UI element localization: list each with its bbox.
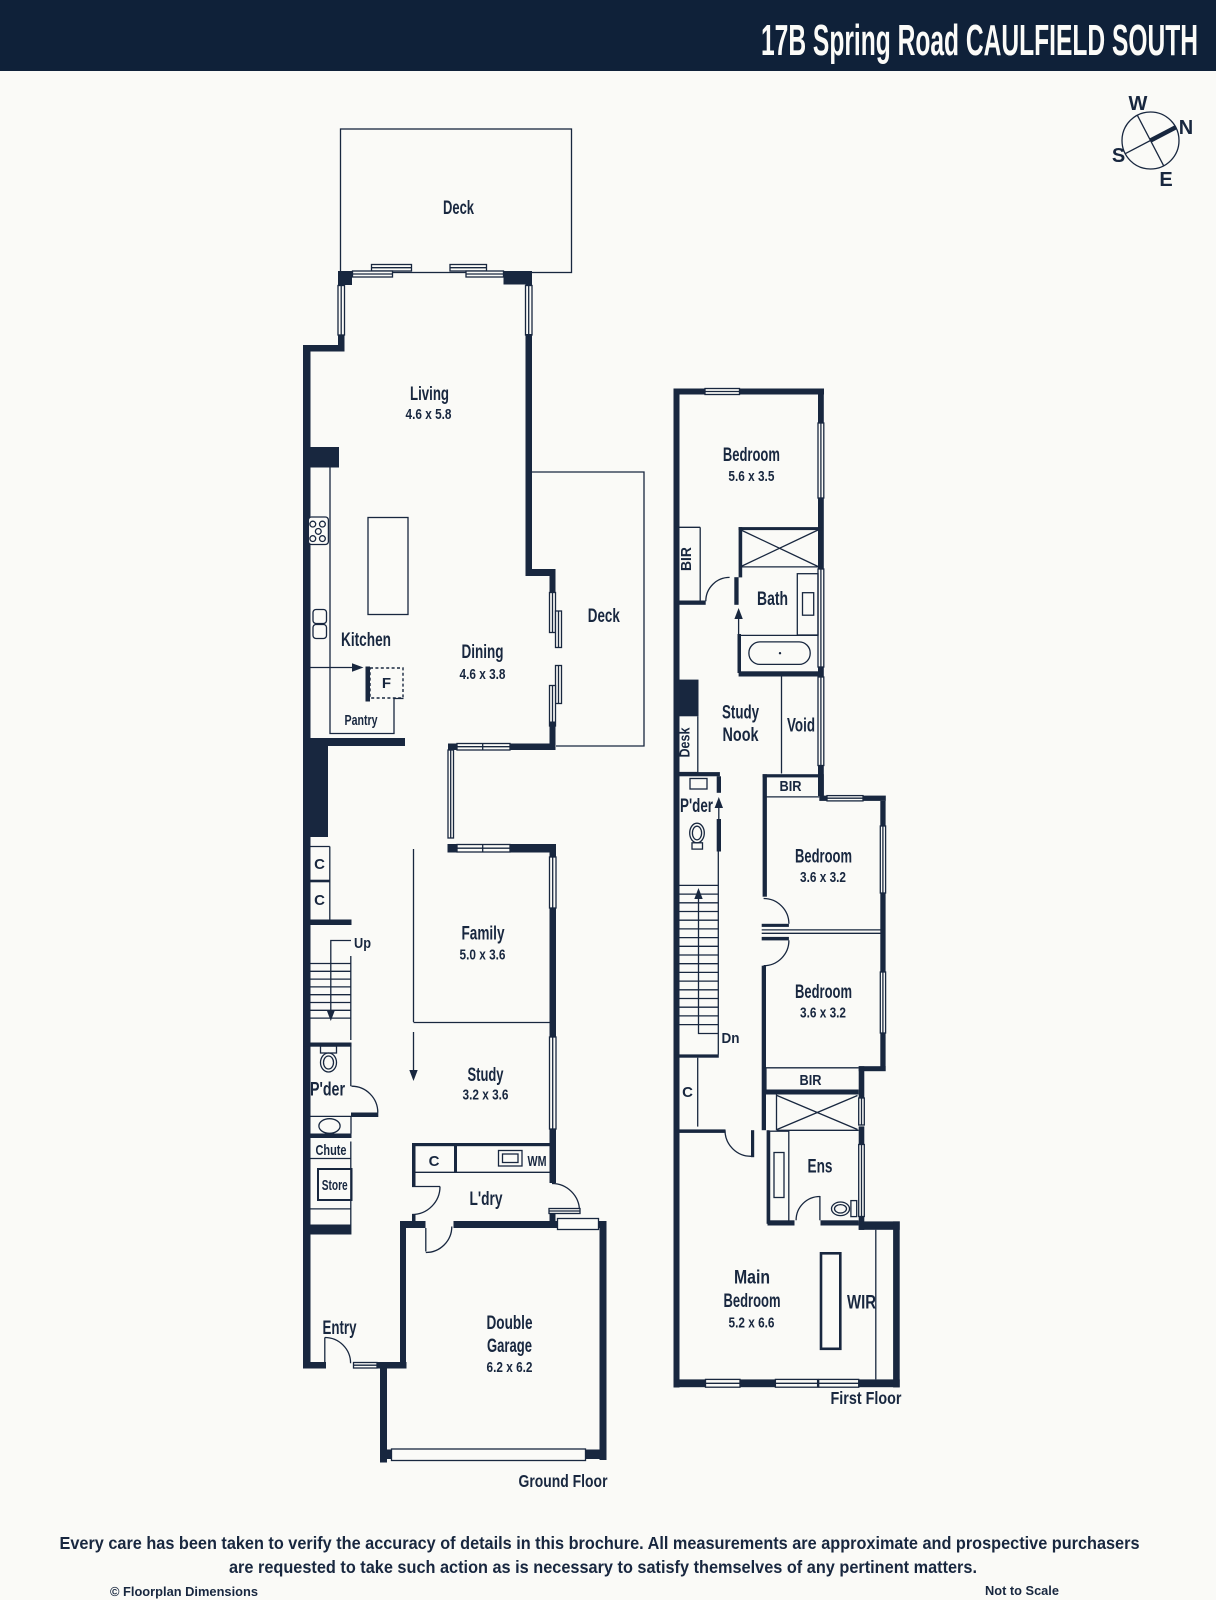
svg-text:5.2 x 6.6: 5.2 x 6.6 <box>729 1315 775 1332</box>
svg-text:Double: Double <box>487 1313 533 1334</box>
svg-text:Main: Main <box>734 1268 770 1289</box>
svg-text:WIR: WIR <box>847 1293 876 1314</box>
svg-text:Bedroom: Bedroom <box>795 847 852 868</box>
svg-text:Void: Void <box>787 716 815 737</box>
svg-text:Not to Scale: Not to Scale <box>985 1584 1059 1598</box>
svg-text:Bath: Bath <box>757 589 788 610</box>
svg-text:3.2 x 3.6: 3.2 x 3.6 <box>463 1087 509 1104</box>
svg-text:Chute: Chute <box>316 1142 347 1159</box>
svg-text:are requested to take such act: are requested to take such action as is … <box>229 1557 977 1577</box>
svg-text:WM: WM <box>528 1153 547 1170</box>
svg-text:P'der: P'der <box>680 796 713 817</box>
svg-text:Nook: Nook <box>723 725 759 746</box>
svg-text:W: W <box>1129 93 1148 115</box>
svg-text:BIR: BIR <box>800 1072 822 1089</box>
svg-text:6.2 x 6.2: 6.2 x 6.2 <box>487 1359 533 1376</box>
svg-text:Dining: Dining <box>462 642 504 663</box>
svg-text:C: C <box>314 892 325 909</box>
svg-text:L'dry: L'dry <box>470 1189 503 1210</box>
svg-text:S: S <box>1112 145 1125 167</box>
svg-text:Entry: Entry <box>323 1318 357 1339</box>
svg-text:Pantry: Pantry <box>345 712 378 729</box>
svg-text:3.6 x 3.2: 3.6 x 3.2 <box>800 869 846 886</box>
svg-text:Bedroom: Bedroom <box>723 445 780 466</box>
svg-text:Study: Study <box>468 1065 504 1086</box>
svg-text:5.0 x 3.6: 5.0 x 3.6 <box>460 947 506 964</box>
svg-text:Garage: Garage <box>487 1336 532 1357</box>
svg-text:Study: Study <box>722 703 759 724</box>
svg-text:5.6 x 3.5: 5.6 x 3.5 <box>728 468 774 485</box>
svg-text:17B Spring Road CAULFIELD SOUT: 17B Spring Road CAULFIELD SOUTH <box>761 16 1198 65</box>
svg-text:Ground Floor: Ground Floor <box>519 1471 608 1491</box>
svg-text:Dn: Dn <box>722 1030 740 1047</box>
svg-text:Deck: Deck <box>443 198 474 219</box>
svg-text:Kitchen: Kitchen <box>341 630 391 651</box>
svg-text:© Floorplan Dimensions: © Floorplan Dimensions <box>110 1585 258 1599</box>
svg-text:4.6 x 3.8: 4.6 x 3.8 <box>460 666 506 683</box>
svg-text:3.6 x 3.2: 3.6 x 3.2 <box>800 1005 846 1022</box>
svg-text:Bedroom: Bedroom <box>724 1291 781 1312</box>
svg-text:Store: Store <box>322 1177 348 1194</box>
svg-text:C: C <box>682 1084 693 1101</box>
svg-text:Living: Living <box>410 384 449 405</box>
svg-text:Every care has been taken to v: Every care has been taken to verify the … <box>60 1533 1140 1553</box>
svg-text:BIR: BIR <box>780 778 802 795</box>
svg-text:F: F <box>382 675 391 692</box>
svg-text:P'der: P'der <box>310 1080 345 1101</box>
svg-text:C: C <box>314 856 325 873</box>
svg-text:Desk: Desk <box>677 727 694 758</box>
svg-text:Ens: Ens <box>808 1157 833 1178</box>
svg-text:C: C <box>429 1153 440 1170</box>
svg-text:First Floor: First Floor <box>831 1388 902 1408</box>
svg-text:N: N <box>1179 117 1193 139</box>
svg-text:4.6 x 5.8: 4.6 x 5.8 <box>406 406 452 423</box>
svg-text:Up: Up <box>354 935 371 952</box>
svg-text:E: E <box>1159 169 1172 191</box>
svg-text:Family: Family <box>462 924 505 945</box>
svg-text:BIR: BIR <box>678 547 695 571</box>
svg-text:Deck: Deck <box>588 606 620 627</box>
svg-text:Bedroom: Bedroom <box>795 982 852 1003</box>
